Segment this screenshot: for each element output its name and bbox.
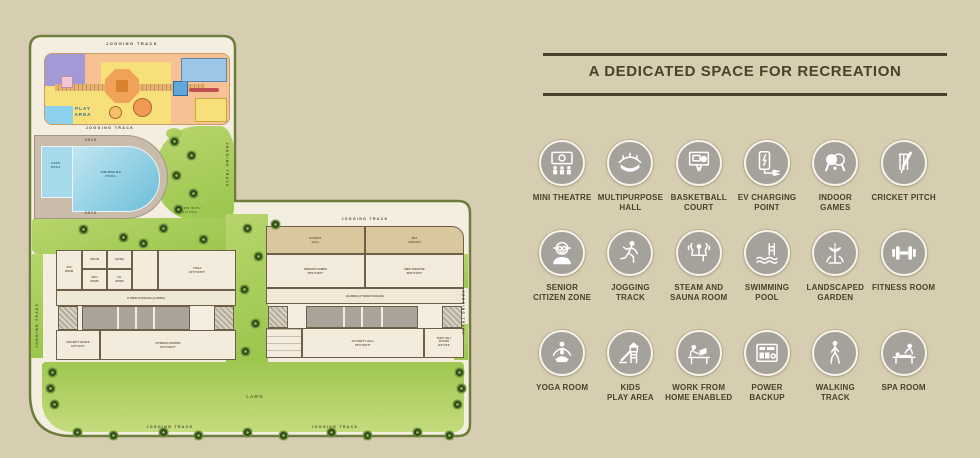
- stair-core-b-left: [268, 306, 288, 328]
- amenity-senior-citizen-zone: SENIOR CITIZEN ZONE: [528, 230, 596, 304]
- play-merry-go-round: [133, 98, 152, 117]
- jogging-track-icon: [607, 230, 653, 276]
- room-fitness-centre: FITNESS CENTRE 61'0"X16'0": [100, 330, 236, 360]
- amenity-label: LANDSCAPED GARDEN: [807, 283, 865, 304]
- passage-a-wing: 8' WIDE PASSAGE (A-WING): [56, 290, 236, 306]
- steam-sauna-icon: [676, 230, 722, 276]
- play-spring-rider: [109, 106, 122, 119]
- amenity-steam-sauna-room: STEAM AND SAUNA ROOM: [665, 230, 733, 304]
- work-from-home-icon: [676, 330, 722, 376]
- room-party-hall-kitchen: PARTY HALL KITCHEN 19'0"X16'6": [424, 328, 464, 358]
- recreation-title: A DEDICATED SPACE FOR RECREATION: [543, 63, 947, 80]
- room-indoor-games: INDOOR GAMES 58'9"X16'6": [266, 254, 365, 288]
- room-security-office: SECURITY OFFICE 10'0"X10'0": [56, 330, 100, 360]
- amenity-ev-charging-point: EV CHARGING POINT: [733, 140, 801, 214]
- mini-theatre-icon: [539, 140, 585, 186]
- amenity-row-3: YOGA ROOM KIDS PLAY AREA WORK FROM HOME …: [528, 330, 938, 404]
- basket-ball-court: BASKET BALL: [266, 226, 365, 254]
- room-ac-party-hall: AC PARTY HALL 65'0"X16'0": [302, 328, 424, 358]
- room-spa: SPA ROOM: [56, 250, 82, 290]
- amenity-spa-room: SPA ROOM: [869, 330, 937, 404]
- amenity-label: STEAM AND SAUNA ROOM: [670, 283, 727, 304]
- stair-core-left: [58, 306, 78, 330]
- amenity-yoga-room: YOGA ROOM: [528, 330, 596, 404]
- indoor-games-icon: [812, 140, 858, 186]
- room-wfh: WFH ROOM: [82, 269, 107, 290]
- amenity-landscaped-garden: LANDSCAPED GARDEN: [801, 230, 869, 304]
- walking-track-icon: [812, 330, 858, 376]
- amenity-label: INDOOR GAMES: [819, 193, 852, 214]
- swimming-pool-shape: [72, 146, 160, 212]
- amenity-power-backup: POWER BACKUP: [733, 330, 801, 404]
- lift-core-a: [82, 306, 190, 330]
- amenity-label: SWIMMING POOL: [733, 283, 801, 304]
- amenity-label: BASKETBALL COURT: [671, 193, 727, 214]
- jogging-track-label-bottom-1: JOGGING TRACK: [115, 425, 225, 430]
- amenity-label: JOGGING TRACK: [596, 283, 664, 304]
- amenity-label: SENIOR CITIZEN ZONE: [533, 283, 591, 304]
- play-area-label: PLAY AREA: [65, 106, 101, 119]
- room-lobby: [132, 250, 158, 290]
- play-structure-core: [116, 80, 128, 92]
- room-sauna: SAUNA: [107, 250, 132, 269]
- deck-label-bottom: DECK: [63, 211, 119, 216]
- amenity-label: WALKING TRACK: [816, 383, 855, 404]
- power-backup-icon: [744, 330, 790, 376]
- amenity-label: MULTIPURPOSE HALL: [598, 193, 663, 214]
- amenity-fitness-room: FITNESS ROOM: [869, 230, 937, 304]
- kids-pool-label: KIDS POOL: [36, 162, 76, 170]
- room-yoga: YOGA 24'0"X16'6": [158, 250, 236, 290]
- play-pink-pad: [61, 76, 73, 88]
- fitness-room-icon: [881, 230, 927, 276]
- title-rule-bottom: [543, 93, 947, 96]
- amenity-label: FITNESS ROOM: [872, 283, 935, 293]
- kids-pool: [41, 146, 73, 198]
- jogging-track-label-right: JOGGING TRACK: [461, 278, 465, 348]
- amenity-swimming-pool: SWIMMING POOL: [733, 230, 801, 304]
- amenity-multipurpose-hall: MULTIPURPOSE HALL: [596, 140, 664, 214]
- lawn-with-sitting-label: LAWN WITH SITTING: [164, 206, 216, 214]
- amenity-row-1: MINI THEATRE MULTIPURPOSE HALL BASKETBAL…: [528, 140, 938, 214]
- room-mini-theatre: MINI THEATRE 58'9"X16'6": [365, 254, 464, 288]
- service-rooms-block: [266, 328, 302, 358]
- play-area: PLAY AREA: [44, 53, 230, 125]
- jogging-track-label-left: JOGGING TRACK: [35, 290, 39, 360]
- amenity-indoor-games: INDOOR GAMES: [801, 140, 869, 214]
- amenity-basketball-court: BASKETBALL COURT: [665, 140, 733, 214]
- jogging-track-label-b: JOGGING TRACK: [310, 217, 420, 222]
- room-steam: STEAM: [82, 250, 107, 269]
- play-swing-blue: [173, 81, 188, 96]
- amenity-label: CRICKET PITCH: [871, 193, 935, 203]
- senior-citizen-icon: [539, 230, 585, 276]
- net-cricket-court: NET CRICKET: [365, 226, 464, 254]
- amenity-label: EV CHARGING POINT: [738, 193, 797, 214]
- play-games-court: [181, 58, 227, 82]
- basketball-court-icon: [676, 140, 722, 186]
- jogging-track-label-vertical-upper: JOGGING TRACK: [225, 130, 229, 200]
- lawn-label: LAWN: [215, 394, 295, 400]
- amenity-label: YOGA ROOM: [536, 383, 588, 393]
- b-wing-building: BASKET BALL NET CRICKET INDOOR GAMES 58'…: [266, 226, 464, 358]
- amenity-label: MINI THEATRE: [533, 193, 592, 203]
- a-wing-building: SPA ROOM STEAM SAUNA WFH ROOM CH. ROOM Y…: [56, 250, 236, 360]
- amenity-jogging-track: JOGGING TRACK: [596, 230, 664, 304]
- stair-core-b-right: [442, 306, 462, 328]
- landscaped-garden-icon: [812, 230, 858, 276]
- multipurpose-hall-icon: [607, 140, 653, 186]
- kids-play-area-icon: [607, 330, 653, 376]
- play-seesaw: [189, 88, 219, 92]
- amenity-label: POWER BACKUP: [733, 383, 801, 404]
- jogging-track-label-bottom-2: JOGGING TRACK: [280, 425, 390, 430]
- site-plan: PLAY AREA DECK KIDS POOL SWIMMING POOL D…: [20, 26, 482, 446]
- spa-room-icon: [881, 330, 927, 376]
- jogging-track-label-top: JOGGING TRACK: [62, 41, 202, 47]
- amenity-work-from-home: WORK FROM HOME ENABLED: [665, 330, 733, 404]
- amenity-kids-play-area: KIDS PLAY AREA: [596, 330, 664, 404]
- amenity-label: WORK FROM HOME ENABLED: [665, 383, 732, 404]
- amenity-label: KIDS PLAY AREA: [607, 383, 654, 404]
- ev-charging-icon: [744, 140, 790, 186]
- swimming-pool-icon: [744, 230, 790, 276]
- amenity-walking-track: WALKING TRACK: [801, 330, 869, 404]
- cricket-pitch-icon: [881, 140, 927, 186]
- room-changing: CH. ROOM: [107, 269, 132, 290]
- lift-core-b: [306, 306, 418, 328]
- title-rule-top: [543, 53, 947, 56]
- amenity-row-2: SENIOR CITIZEN ZONE JOGGING TRACK STEAM …: [528, 230, 938, 304]
- pool-deck: DECK KIDS POOL SWIMMING POOL DECK: [34, 135, 168, 219]
- lawn-strip: [32, 218, 234, 254]
- amenity-mini-theatre: MINI THEATRE: [528, 140, 596, 214]
- deck-label-top: DECK: [63, 138, 119, 143]
- yoga-room-icon: [539, 330, 585, 376]
- jogging-track-label-2: JOGGING TRACK: [50, 126, 170, 131]
- amenity-cricket-pitch: CRICKET PITCH: [869, 140, 937, 214]
- amenity-label: SPA ROOM: [881, 383, 925, 393]
- play-yellow-block: [195, 98, 227, 122]
- stair-core-right: [214, 306, 234, 330]
- swimming-pool-label: SWIMMING POOL: [83, 170, 139, 178]
- passage-b-wing: (B-WING) 8' WIDE PASSAGE: [266, 288, 464, 304]
